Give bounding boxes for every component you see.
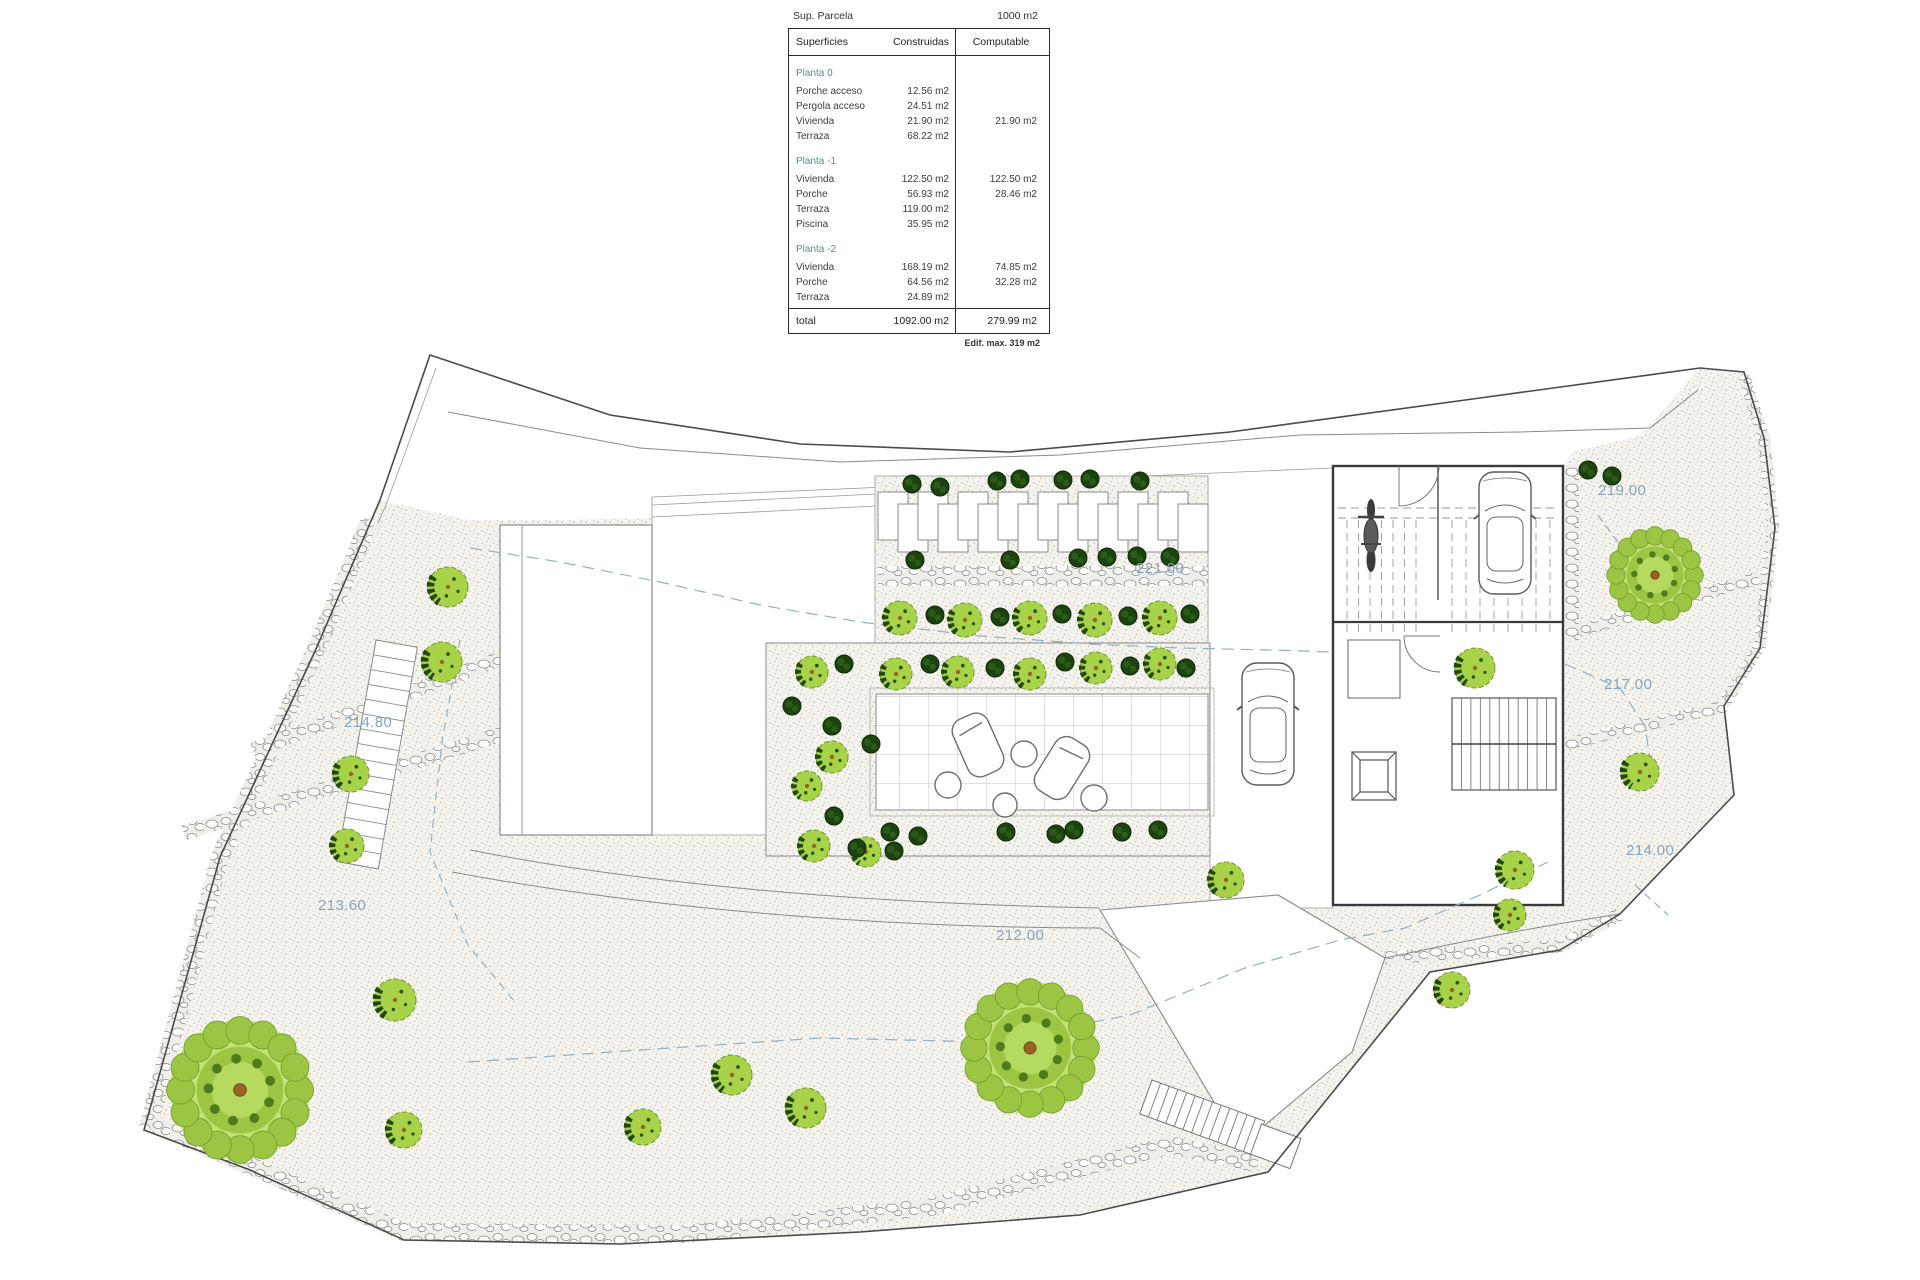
table-row: Vivienda 21.90 m2 21.90 m2: [789, 114, 1049, 129]
tree-icon: [816, 741, 848, 773]
tree-icon: [880, 658, 912, 690]
bush-icon: [1054, 471, 1072, 489]
col-superficies: Superficies: [789, 36, 881, 48]
bush-icon: [1069, 549, 1087, 567]
tree-icon: [792, 771, 822, 801]
elevation-label-217: 217.00: [1604, 676, 1652, 693]
bush-icon: [1177, 659, 1195, 677]
table-row: Vivienda 122.50 m2 122.50 m2: [789, 172, 1049, 187]
pergola-slats: [878, 492, 1208, 552]
bush-icon: [1011, 470, 1029, 488]
bush-icon: [1065, 821, 1083, 839]
pouf: [993, 793, 1017, 817]
bush-icon: [823, 717, 841, 735]
bush-icon: [1149, 821, 1167, 839]
bush-icon: [986, 659, 1004, 677]
large-tree-icon: [1607, 527, 1704, 624]
car-icon: [1237, 663, 1299, 785]
bush-icon: [997, 823, 1015, 841]
table-row: Terraza 24.89 m2: [789, 290, 1049, 305]
car-icon: [1474, 472, 1536, 594]
bush-icon: [1081, 470, 1099, 488]
tree-icon: [374, 979, 416, 1021]
bush-icon: [903, 475, 921, 493]
bush-icon: [1098, 548, 1116, 566]
tree-icon: [1621, 753, 1659, 791]
area-table-box: Superficies Construidas Computable Plant…: [788, 28, 1050, 334]
tree-icon: [798, 830, 830, 862]
tree-icon: [1014, 658, 1046, 690]
bush-icon: [921, 655, 939, 673]
site-plan-page: 219.00 221.00 217.00 214.80 214.00 213.6…: [0, 0, 1920, 1280]
bush-icon: [1121, 657, 1139, 675]
bush-icon: [988, 472, 1006, 490]
pouf: [935, 772, 961, 798]
section-heading: Planta -2: [789, 232, 1049, 260]
bush-icon: [1131, 472, 1149, 490]
tree-icon: [1080, 652, 1112, 684]
bush-icon: [1181, 605, 1199, 623]
elevation-label-214-80: 214.80: [344, 714, 392, 731]
parcel-label: Sup. Parcela: [793, 10, 853, 22]
tree-icon: [1208, 862, 1244, 898]
tree-icon: [1143, 601, 1177, 635]
bush-icon: [862, 735, 880, 753]
table-divider: [955, 29, 956, 333]
section-heading: Planta -1: [789, 144, 1049, 172]
table-row: Porche acceso 12.56 m2: [789, 84, 1049, 99]
tree-icon: [796, 656, 828, 688]
col-construidas: Construidas: [881, 36, 955, 48]
tree-icon: [1455, 648, 1495, 688]
bush-icon: [906, 551, 924, 569]
large-tree-icon: [961, 979, 1100, 1118]
tree-icon: [422, 642, 462, 682]
tree-icon: [1013, 601, 1047, 635]
bush-icon: [909, 827, 927, 845]
bush-icon: [885, 842, 903, 860]
parcel-title-row: Sup. Parcela 1000 m2: [788, 8, 1050, 28]
pergola-slat: [1178, 504, 1208, 552]
pouf: [1081, 785, 1107, 811]
large-tree-icon: [167, 1017, 314, 1164]
bush-icon: [1113, 823, 1131, 841]
table-row: Vivienda 168.19 m2 74.85 m2: [789, 260, 1049, 275]
area-table: Sup. Parcela 1000 m2 Superficies Constru…: [788, 8, 1050, 348]
table-row: Terraza 68.22 m2: [789, 129, 1049, 144]
elevation-label-214: 214.00: [1626, 842, 1674, 859]
tree-icon: [330, 829, 364, 863]
tree-icon: [712, 1055, 752, 1095]
bush-icon: [848, 839, 866, 857]
table-total-row: total 1092.00 m2 279.99 m2: [789, 308, 1049, 333]
tree-icon: [333, 756, 369, 792]
bush-icon: [1119, 607, 1137, 625]
bush-icon: [1579, 461, 1597, 479]
bush-icon: [1053, 605, 1071, 623]
elevation-label-219: 219.00: [1598, 482, 1646, 499]
tree-icon: [942, 656, 974, 688]
tree-icon: [625, 1109, 661, 1145]
elevation-label-212: 212.00: [996, 927, 1044, 944]
table-header-row: Superficies Construidas Computable: [789, 29, 1049, 56]
bush-icon: [1001, 551, 1019, 569]
building-roof: [500, 525, 652, 835]
table-row: Pergola acceso 24.51 m2: [789, 99, 1049, 114]
table-row: Terraza 119.00 m2: [789, 202, 1049, 217]
section-heading: Planta 0: [789, 56, 1049, 84]
tree-icon: [386, 1112, 422, 1148]
bush-icon: [825, 807, 843, 825]
bush-icon: [991, 608, 1009, 626]
table-row: Porche 64.56 m2 32.28 m2: [789, 275, 1049, 290]
tree-icon: [1144, 648, 1176, 680]
elevation-label-213-60: 213.60: [318, 897, 366, 914]
bush-icon: [1056, 653, 1074, 671]
bush-icon: [931, 478, 949, 496]
tree-icon: [1494, 899, 1526, 931]
tree-icon: [883, 601, 917, 635]
bush-icon: [926, 606, 944, 624]
bush-icon: [835, 655, 853, 673]
table-row: Porche 56.93 m2 28.46 m2: [789, 187, 1049, 202]
bush-icon: [881, 823, 899, 841]
pouf: [1011, 741, 1037, 767]
parcel-value: 1000 m2: [997, 10, 1038, 22]
tree-icon: [1434, 972, 1470, 1008]
tree-icon: [786, 1088, 826, 1128]
edificability-note: Edif. max. 319 m2: [788, 334, 1050, 348]
tree-icon: [948, 603, 982, 637]
tree-icon: [1078, 603, 1112, 637]
bush-icon: [783, 697, 801, 715]
interior-staircase: [1452, 698, 1556, 790]
tree-icon: [428, 567, 468, 607]
bush-icon: [1047, 825, 1065, 843]
table-row: Piscina 35.95 m2: [789, 217, 1049, 232]
tree-icon: [1496, 851, 1534, 889]
elevation-label-221: 221.00: [1136, 560, 1184, 577]
col-computable: Computable: [955, 36, 1051, 48]
